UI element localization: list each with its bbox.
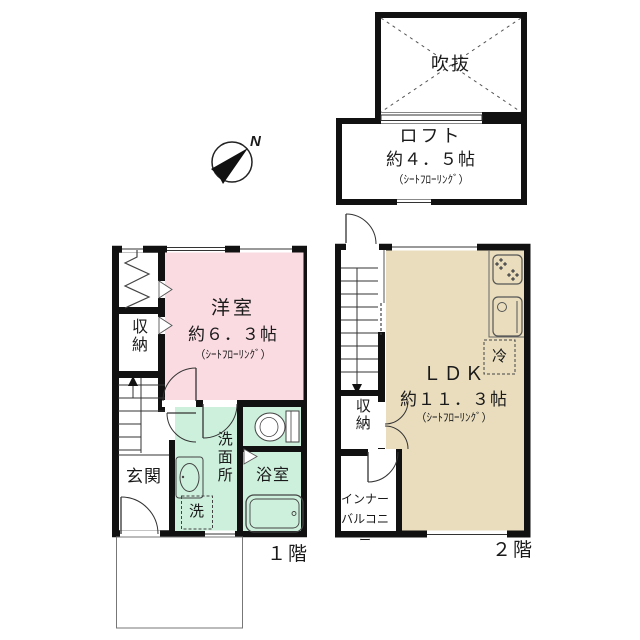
- washer-label: 洗: [181, 503, 212, 522]
- western-room-size-label: 約６．３帖: [162, 324, 304, 345]
- loft-room-label: ロフト: [336, 125, 526, 148]
- bathroom-label: 浴室: [246, 466, 300, 486]
- floor2-caption: ２階: [483, 539, 543, 563]
- compass-icon: [211, 142, 252, 184]
- washroom-label: 洗面所: [214, 431, 233, 485]
- storage-1f-label: 収納: [127, 318, 147, 354]
- floor1-caption: １階: [258, 543, 318, 567]
- loft-flooring-label: （ｼｰﾄﾌﾛｰﾘﾝｸﾞ）: [336, 174, 526, 188]
- entrance-label: 玄関: [115, 466, 173, 487]
- loft-size-label: 約４．５帖: [336, 149, 526, 170]
- compass-north-label: N: [250, 133, 261, 152]
- loft-window: [397, 200, 431, 207]
- void-room-label: 吹抜: [375, 53, 527, 76]
- ldk-size-label: 約１１．３帖: [384, 389, 524, 410]
- toilet-icon: [255, 411, 299, 442]
- ldk-flooring-label: （ｼｰﾄﾌﾛｰﾘﾝｸﾞ）: [384, 412, 524, 426]
- fridge-label: 冷: [484, 348, 515, 367]
- inner-balcony-label: インナー バルコニー: [336, 489, 394, 550]
- western-room-label: 洋室: [162, 297, 304, 321]
- storage-2f-label: 収納: [352, 398, 371, 432]
- floorplan-canvas: 吹抜 ロフト 約４．５帖 （ｼｰﾄﾌﾛｰﾘﾝｸﾞ） N 洋室 約６．３帖 （ｼｰ…: [0, 0, 640, 640]
- loft-railing: [381, 113, 482, 124]
- floorplan-drawing: [0, 0, 640, 640]
- western-room-flooring-label: （ｼｰﾄﾌﾛｰﾘﾝｸﾞ）: [162, 349, 304, 363]
- approach-outline: [117, 537, 243, 628]
